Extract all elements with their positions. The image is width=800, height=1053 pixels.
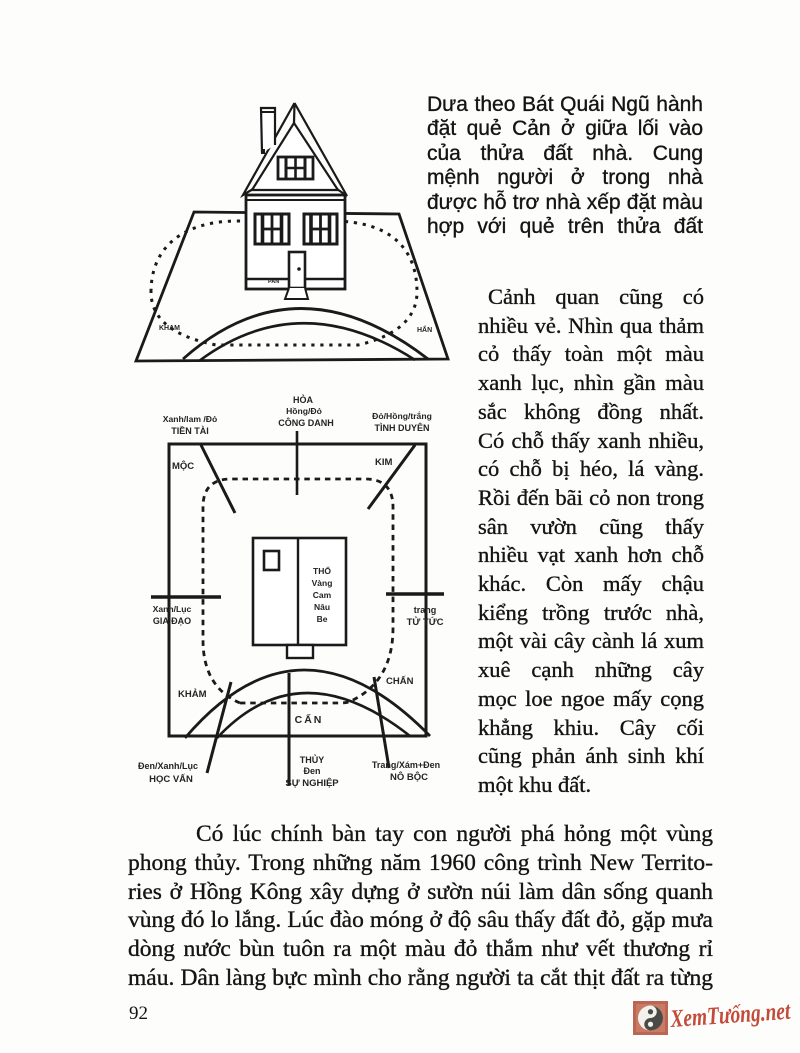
svg-text:GIA ĐẠO: GIA ĐẠO (153, 616, 191, 626)
svg-text:TỬ TỨC: TỬ TỨC (407, 616, 444, 628)
svg-text:THỔ: THỔ (313, 565, 331, 576)
svg-text:TÌNH DUYÊN: TÌNH DUYÊN (374, 422, 429, 433)
svg-text:Đen: Đen (303, 766, 320, 776)
svg-text:NÔ BỘC: NÔ BỘC (390, 771, 428, 783)
svg-text:Xanh/Lục: Xanh/Lục (153, 604, 192, 614)
svg-text:Đen/Xanh/Lục: Đen/Xanh/Lục (138, 761, 198, 771)
svg-text:CẤN: CẤN (295, 713, 324, 726)
svg-text:KIM: KIM (375, 457, 393, 468)
svg-text:HẤN: HẤN (417, 324, 432, 334)
svg-text:KHAM: KHAM (159, 325, 180, 332)
svg-text:Cam: Cam (313, 590, 332, 600)
svg-text:Hồng/Đỏ: Hồng/Đỏ (286, 406, 322, 416)
svg-text:HỎA: HỎA (293, 394, 314, 405)
svg-text:Vàng: Vàng (312, 578, 333, 588)
svg-text:Xanh/lam /Đỏ: Xanh/lam /Đỏ (163, 414, 217, 424)
svg-text:trang: trang (414, 605, 437, 615)
svg-text:PAN: PAN (268, 279, 279, 285)
svg-text:MỘC: MỘC (172, 460, 194, 472)
svg-text:Đỏ/Hồng/trắng: Đỏ/Hồng/trắng (372, 410, 432, 421)
svg-text:Trang/Xám+Đen: Trang/Xám+Đen (372, 760, 440, 770)
svg-text:THỦY: THỦY (300, 754, 325, 765)
svg-text:SỰ NGHIỆP: SỰ NGHIỆP (285, 777, 339, 789)
svg-text:XemTưống.net: XemTưống.net (669, 998, 792, 1033)
svg-text:Nâu: Nâu (314, 602, 330, 612)
svg-text:CHẤN: CHẤN (386, 676, 414, 687)
svg-text:CÔNG DANH: CÔNG DANH (278, 417, 334, 428)
svg-text:TIỀN TÀI: TIỀN TÀI (171, 426, 209, 436)
svg-text:KHẢM: KHẢM (178, 688, 207, 700)
svg-text:HỌC VẤN: HỌC VẤN (149, 774, 193, 785)
svg-text:Be: Be (317, 614, 328, 624)
